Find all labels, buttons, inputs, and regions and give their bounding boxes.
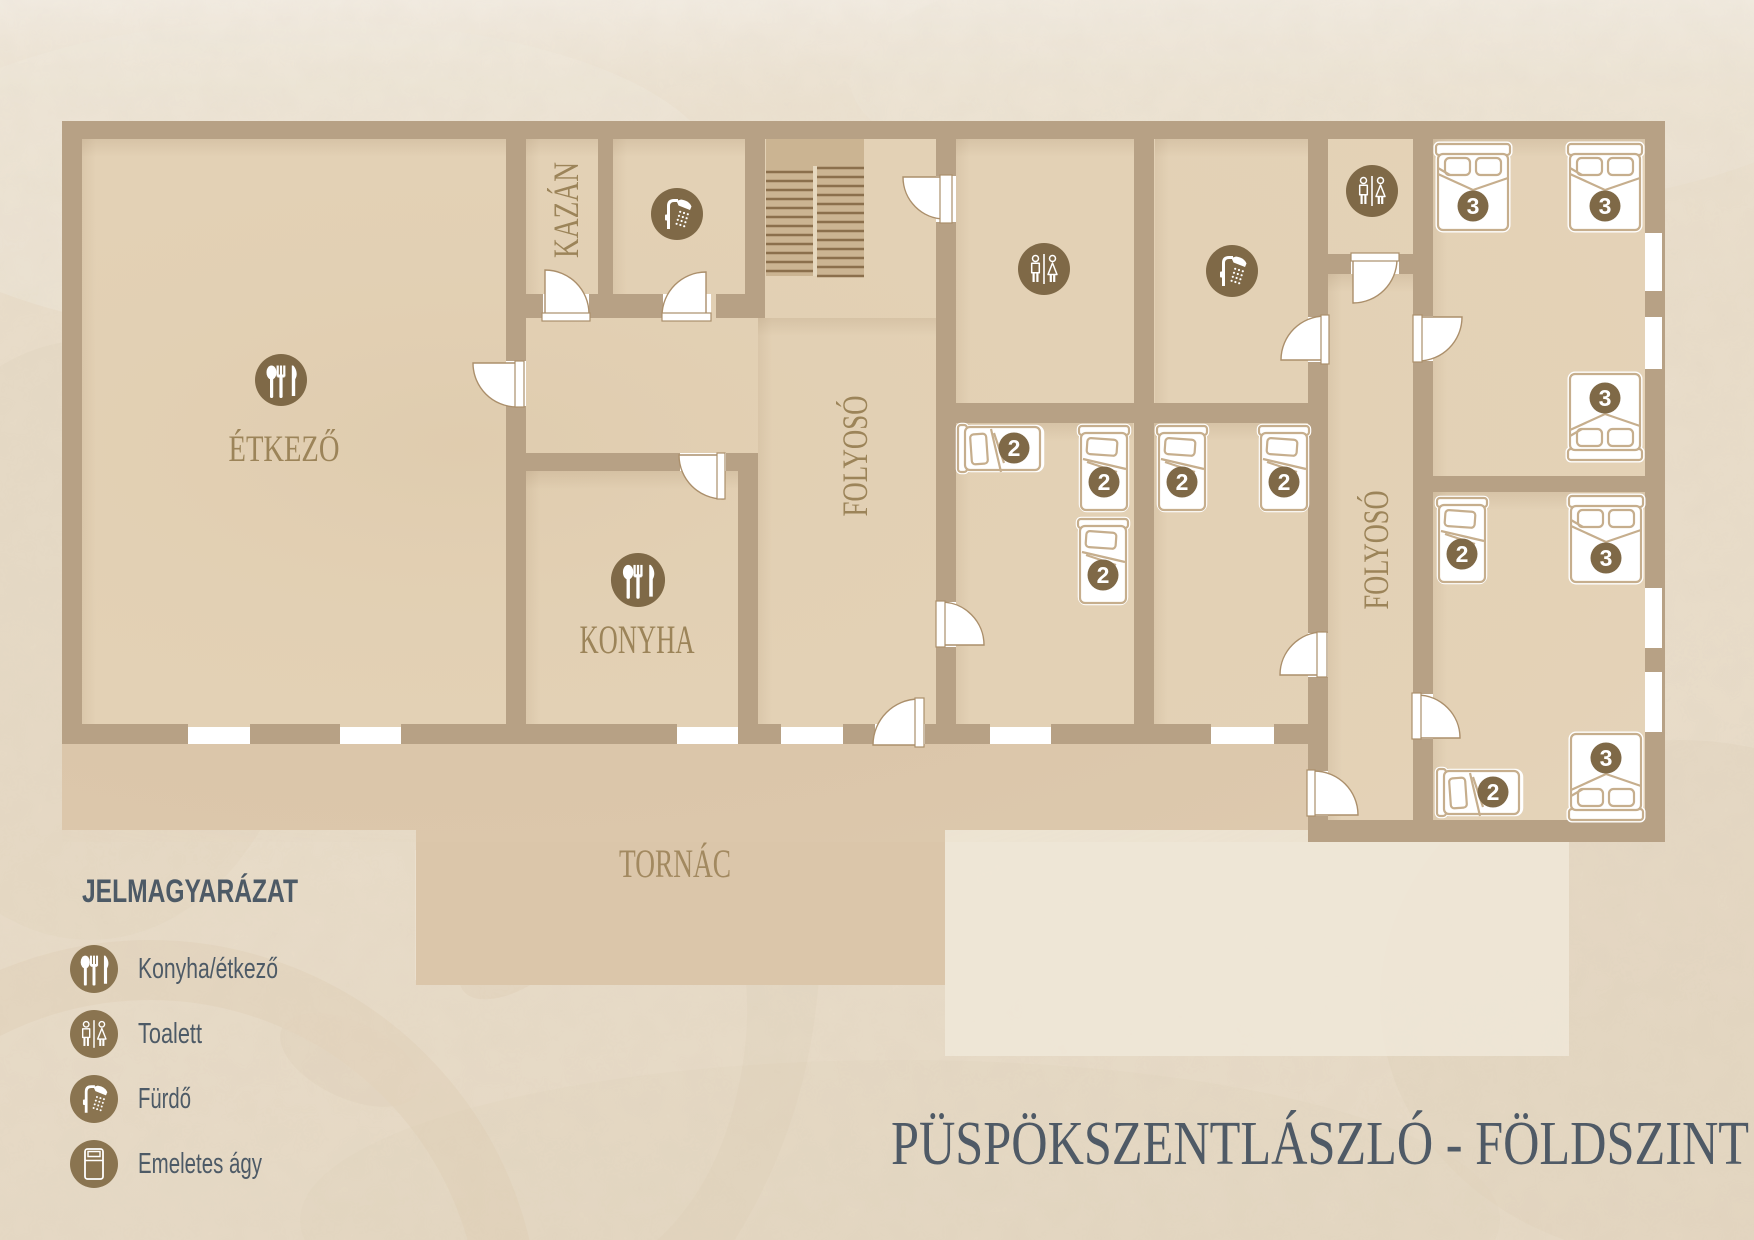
svg-text:2: 2 bbox=[1176, 469, 1189, 495]
svg-text:FOLYOSÓ: FOLYOSÓ bbox=[1356, 491, 1396, 610]
svg-text:Emeletes ágy: Emeletes ágy bbox=[138, 1148, 262, 1180]
svg-text:PÜSPÖKSZENTLÁSZLÓ - FÖLDSZINT: PÜSPÖKSZENTLÁSZLÓ - FÖLDSZINT bbox=[891, 1110, 1749, 1178]
svg-text:ÉTKEZŐ: ÉTKEZŐ bbox=[229, 428, 340, 470]
svg-text:2: 2 bbox=[1097, 562, 1110, 588]
svg-text:2: 2 bbox=[1008, 435, 1021, 461]
svg-text:2: 2 bbox=[1278, 469, 1291, 495]
svg-text:JELMAGYARÁZAT: JELMAGYARÁZAT bbox=[82, 873, 298, 909]
svg-text:Fürdő: Fürdő bbox=[138, 1083, 191, 1115]
svg-text:3: 3 bbox=[1599, 385, 1612, 411]
svg-text:TORNÁC: TORNÁC bbox=[619, 841, 731, 886]
svg-text:FOLYOSÓ: FOLYOSÓ bbox=[835, 396, 875, 517]
svg-text:3: 3 bbox=[1600, 745, 1613, 771]
svg-text:3: 3 bbox=[1599, 193, 1612, 219]
svg-text:Toalett: Toalett bbox=[138, 1018, 202, 1050]
svg-text:2: 2 bbox=[1098, 469, 1111, 495]
svg-text:Konyha/étkező: Konyha/étkező bbox=[138, 953, 278, 985]
svg-text:KAZÁN: KAZÁN bbox=[546, 162, 586, 258]
svg-text:2: 2 bbox=[1456, 541, 1469, 567]
svg-text:KONYHA: KONYHA bbox=[580, 617, 695, 662]
svg-text:3: 3 bbox=[1600, 545, 1613, 571]
svg-text:2: 2 bbox=[1487, 779, 1500, 805]
svg-text:3: 3 bbox=[1467, 193, 1480, 219]
